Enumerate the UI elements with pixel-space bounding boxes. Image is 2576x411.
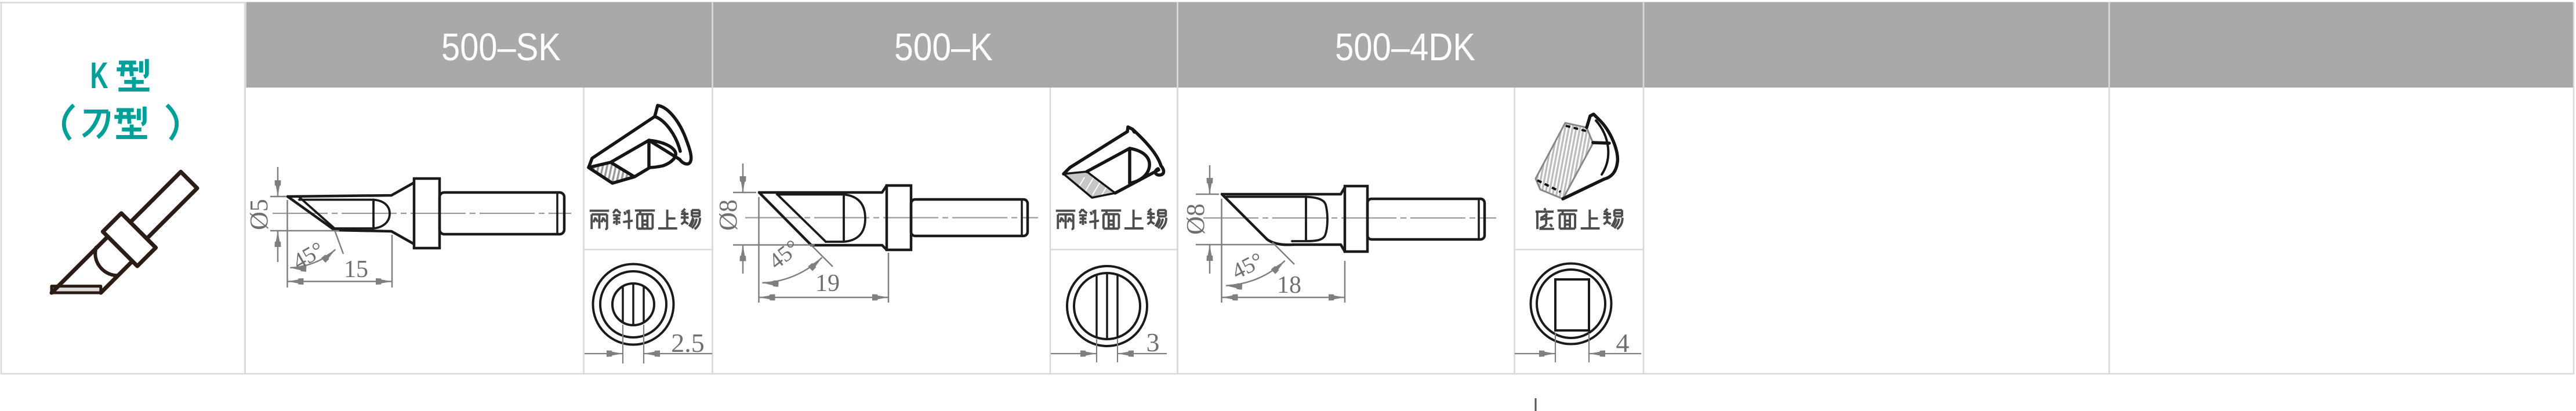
svg-text:15: 15: [344, 256, 368, 283]
svg-text:3: 3: [1146, 328, 1160, 357]
svg-text:19: 19: [815, 270, 840, 297]
svg-text:Ø5: Ø5: [245, 199, 273, 230]
svg-text:4: 4: [1616, 328, 1630, 358]
svg-text:2.5: 2.5: [671, 328, 705, 358]
svg-text:500–4DK: 500–4DK: [1335, 26, 1475, 69]
svg-text:500–SK: 500–SK: [441, 26, 561, 69]
svg-text:45°: 45°: [764, 235, 805, 274]
svg-text:Ø8: Ø8: [714, 199, 742, 231]
svg-text:18: 18: [1277, 272, 1301, 299]
svg-text:500–K: 500–K: [894, 26, 993, 69]
svg-text:45°: 45°: [1228, 248, 1267, 284]
svg-text:45°: 45°: [288, 237, 328, 275]
svg-text:K: K: [90, 54, 108, 96]
svg-text:Ø8: Ø8: [1181, 203, 1210, 235]
